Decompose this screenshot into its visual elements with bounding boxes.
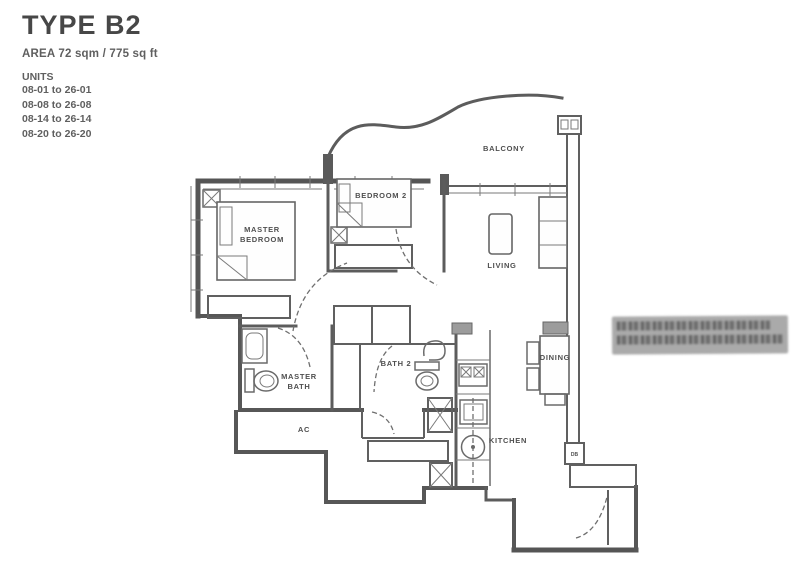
- coffee-table: [489, 214, 512, 254]
- room-label-kitchen: KITCHEN: [489, 436, 527, 445]
- dining-chair: [527, 342, 539, 364]
- room-label-master-bath: BATH: [287, 382, 310, 391]
- corridor-cabinets: [334, 306, 410, 344]
- toilet: [245, 369, 254, 392]
- watermark-text-row: [617, 334, 783, 344]
- sofa: [539, 197, 567, 268]
- living-furniture: [489, 197, 567, 268]
- dining-set: [527, 336, 569, 405]
- dining-table: [540, 336, 569, 394]
- room-label-bath2: BATH 2: [381, 359, 412, 368]
- service-shafts: [368, 398, 584, 487]
- floor-plan: BALCONY BEDROOM 2 MASTER BEDROOM LIVING …: [0, 0, 800, 575]
- master-bath-fixtures: [242, 329, 278, 392]
- room-label-master-bath: MASTER: [281, 372, 317, 381]
- balcony-parapet: [328, 95, 581, 157]
- dining-chair: [545, 394, 565, 405]
- room-label-living: LIVING: [487, 261, 516, 270]
- label-db: DB: [571, 452, 579, 458]
- room-label-bedroom2: BEDROOM 2: [355, 191, 407, 200]
- toilet: [415, 362, 439, 370]
- dining-chair: [527, 368, 539, 390]
- floor-plan-page: TYPE B2 AREA 72 sqm / 775 sq ft UNITS 08…: [0, 0, 800, 575]
- kitchen-counter-top: [452, 323, 472, 334]
- watermark-stamp: [612, 315, 788, 354]
- room-label-dining: DINING: [540, 353, 570, 362]
- room-label-ac: AC: [298, 425, 310, 434]
- room-label-master-bedroom: MASTER: [244, 225, 280, 234]
- kitchen-tall-unit: [543, 322, 568, 334]
- watermark-text-row: [617, 321, 770, 331]
- bedroom2-wardrobe: [335, 245, 412, 268]
- bath2-fixtures: [415, 341, 445, 390]
- entry-wall-chunk: [570, 465, 636, 487]
- room-label-master-bedroom: BEDROOM: [240, 235, 284, 244]
- master-bedroom-furniture: [203, 190, 295, 318]
- room-label-balcony: BALCONY: [483, 144, 525, 153]
- balcony-sliding-door: [440, 174, 567, 196]
- ledge: [368, 441, 448, 461]
